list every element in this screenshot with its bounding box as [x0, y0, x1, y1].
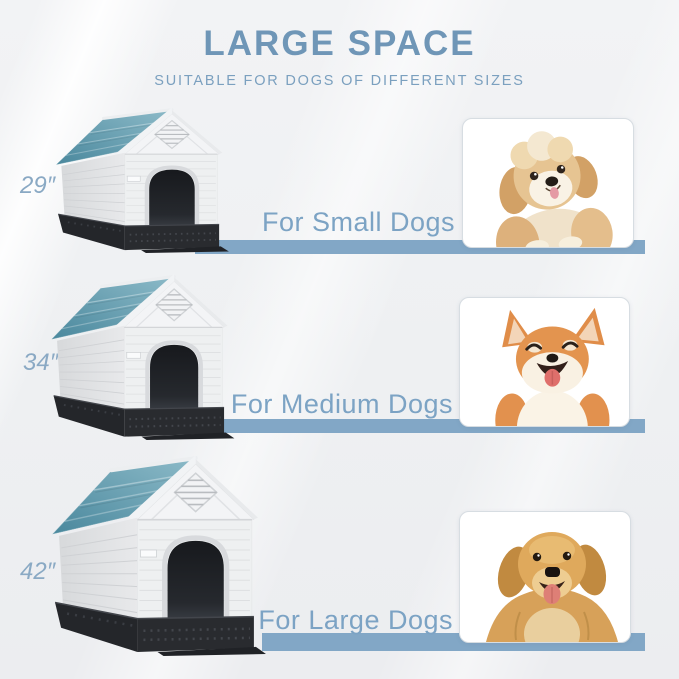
shiba-inu-photo: [460, 298, 629, 426]
large-dog-house-image: [45, 449, 276, 656]
medium-dog-house-image: [45, 269, 243, 440]
page-title: LARGE SPACE: [0, 24, 679, 64]
caption-small-dogs: For Small Dogs: [262, 207, 455, 238]
medium-dog-photo-card: [459, 297, 630, 427]
caption-medium-dogs: For Medium Dogs: [231, 389, 453, 420]
golden-retriever-photo: [460, 512, 630, 642]
product-infographic: LARGE SPACE SUITABLE FOR DOGS OF DIFFERE…: [0, 0, 679, 679]
large-dog-photo-card: [459, 511, 631, 643]
caption-large-dogs: For Large Dogs: [258, 605, 453, 636]
page-subtitle: SUITABLE FOR DOGS OF DIFFERENT SIZES: [0, 73, 679, 89]
havanese-puppy-photo: [463, 119, 633, 247]
header: LARGE SPACE SUITABLE FOR DOGS OF DIFFERE…: [0, 24, 679, 89]
small-dog-photo-card: [462, 118, 634, 248]
small-dog-house-image: [50, 103, 237, 253]
